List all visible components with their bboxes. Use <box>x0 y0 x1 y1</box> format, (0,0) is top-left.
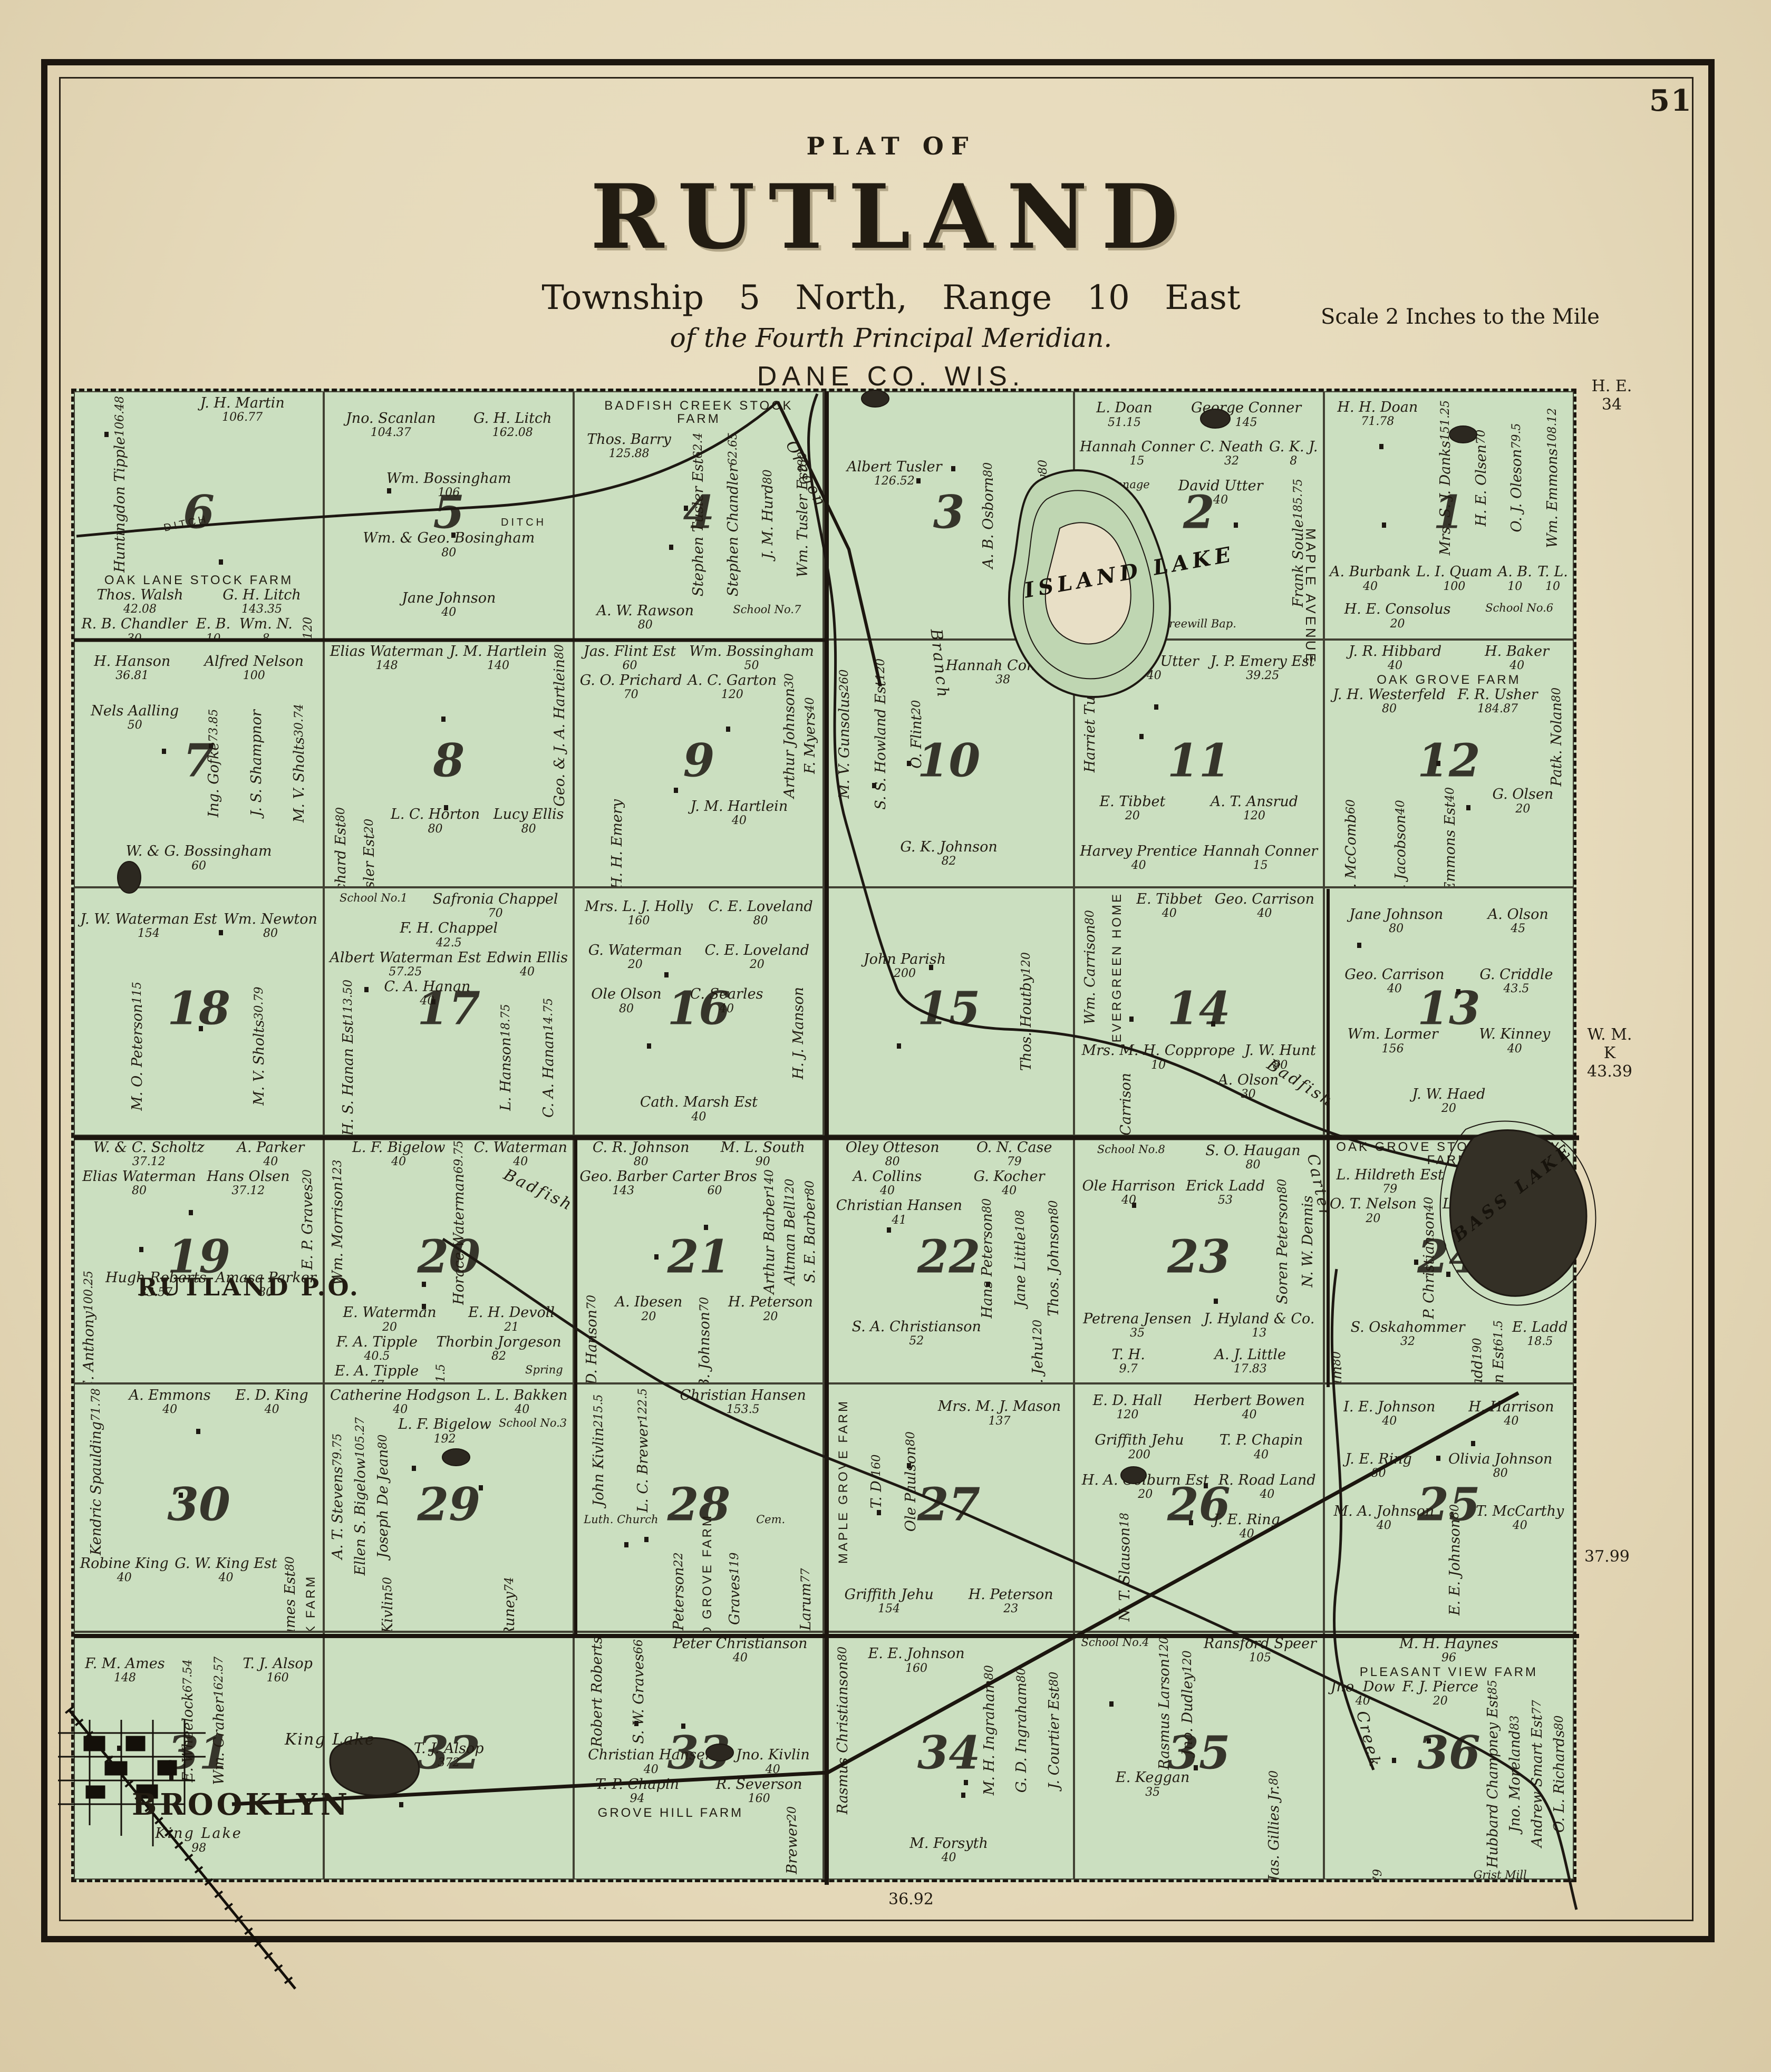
parcel-name: M. V. Sholts <box>291 737 307 822</box>
parcel-name: H. S. Hanan Est <box>340 1020 356 1134</box>
parcel-name: Spring <box>525 1364 563 1376</box>
house-marker <box>1211 1021 1215 1027</box>
parcel-name: M. Forsyth <box>909 1836 988 1851</box>
parcel-acreage: 40 <box>1220 1448 1303 1461</box>
parcel-name: Olivia Johnson <box>1448 1452 1552 1467</box>
owner-label: L. F. Bigelow40 <box>352 1140 446 1305</box>
parcel-name: J. E. Ring <box>1214 1513 1280 1527</box>
parcel-name: Wm. Morrison <box>330 1182 346 1285</box>
owner-label: Griffith Jehu200 <box>1095 1433 1184 1461</box>
section-labels: School No.1Safronia Chappel70F. H. Chapp… <box>325 888 573 1135</box>
parcel-acreage: 80 <box>493 822 564 836</box>
owner-label: Geo. Barber143 <box>579 1169 667 1294</box>
section-labels: H. H. Doan71.78Mrs. S. J. Danks151.25H. … <box>1325 392 1573 638</box>
parcel-name: J. H. Martin <box>200 396 285 411</box>
parcel-name: T. McCarthy <box>1476 1504 1564 1519</box>
title-name: RUTLAND <box>337 164 1445 269</box>
parcel-acreage: 23 <box>496 1382 509 1382</box>
parcel-name: C. Waterman <box>474 1140 567 1155</box>
section-8: 8Elias Waterman148J. M. Hartlein140Geo. … <box>324 640 574 888</box>
owner-label: Mrs. S. J. Danks151.25 <box>1438 400 1453 556</box>
owner-label: E. E. Johnson80 <box>1448 1504 1463 1615</box>
parcel-name: G. H. Litch <box>473 411 551 426</box>
parcel-name: O. L. Richards <box>1551 1730 1567 1832</box>
parcel-name: Thorbin Jorgeson <box>436 1335 561 1350</box>
section-labels: H. Hanson36.81Alfred Nelson100Nels Aalli… <box>75 641 323 887</box>
parcel-name: S. W. Graves <box>631 1654 647 1744</box>
parcel-acreage: 20 <box>1330 1212 1417 1225</box>
parcel-name: Geo. Carrison <box>1215 892 1314 907</box>
parcel-name: Catherine Hodgson <box>330 1388 470 1403</box>
parcel-name: Mrs. S. J. Danks <box>1437 441 1454 556</box>
section-labels: J. W. Waterman Est154Wm. Newton80M. O. P… <box>75 888 323 1135</box>
parcel-name: J. B. Johnson <box>696 1312 713 1382</box>
section-27: 27MAPLE GROVE FARMT. D.160Ole Paulson80M… <box>824 1383 1073 1632</box>
parcel-name: H. Peterson <box>728 1295 813 1310</box>
parcel-acreage: 80 <box>804 1180 817 1195</box>
owner-label: G. H. Litch162.08 <box>473 411 551 439</box>
parcel-name: Rasmus Christianson <box>835 1661 851 1814</box>
owner-label: M. L. South90 <box>721 1140 805 1168</box>
owner-label: S. W. Graves119 <box>728 1514 742 1631</box>
parcel-name: Petrena Jensen <box>1083 1312 1192 1327</box>
parcel-name: Hans Peterson <box>979 1213 995 1319</box>
section-labels: Wm. Carrison80EVERGREEN HOMEE. Tibbet40G… <box>1075 888 1323 1135</box>
parcel-acreage: 111.5 <box>434 1364 448 1382</box>
owner-label: L. Hildreth Est79 <box>1336 1168 1443 1196</box>
parcel-acreage: 32 <box>1200 454 1264 468</box>
owner-label: E. E. Johnson160 <box>868 1647 965 1814</box>
parcel-acreage: 20 <box>1412 1102 1485 1115</box>
parcel-acreage: 36.81 <box>94 669 170 682</box>
parcel-acreage: 80 <box>761 470 775 485</box>
parcel-acreage: 30 <box>1218 1088 1279 1101</box>
parcel-name: PLEASANT VIEW FARM <box>1360 1666 1538 1679</box>
parcel-name: L. F. Bigelow <box>398 1417 491 1432</box>
section-15: 15John Parish200Thos. Houtby120 <box>824 887 1073 1136</box>
owner-label: Arthur Barber140 <box>762 1169 777 1294</box>
owner-label: David Utter40 <box>1178 479 1263 607</box>
parcel-acreage: 120 <box>1020 952 1033 974</box>
parcel-name: Jane Little <box>1012 1232 1029 1307</box>
parcel-acreage: 30.79 <box>253 986 266 1020</box>
parcel-acreage: 60 <box>672 1184 757 1197</box>
place-label: Grist Mill <box>1474 1869 1527 1879</box>
parcel-acreage: 40 <box>1330 580 1411 593</box>
owner-label: James Carrison <box>1119 1073 1134 1135</box>
parcel-name: M. A. Johnson <box>1333 1504 1434 1519</box>
parcel-name: John Kivlin <box>591 1428 607 1506</box>
parcel-name: Peter Christianson <box>673 1637 807 1651</box>
parcel-acreage: 115 <box>131 982 144 1004</box>
owner-label: J. P. Emery Est39.25 <box>1211 654 1315 772</box>
school-label: School No.1 <box>340 892 408 920</box>
parcel-name: Hannah Conner <box>1203 844 1318 859</box>
parcel-acreage: 30 <box>81 632 187 638</box>
parcel-acreage: 37.12 <box>207 1184 289 1197</box>
parcel-name: Horace Waterman <box>451 1173 467 1304</box>
brooklyn-label: BROOKLYN <box>132 1787 351 1822</box>
parcel-name: L. Emmons Est <box>1442 802 1458 886</box>
school-label: School No.8 <box>1097 1144 1165 1171</box>
parcel-name: S. Larum <box>798 1583 814 1630</box>
parcel-acreage: 83 <box>1508 1716 1522 1730</box>
parcel-acreage: 80 <box>596 618 694 632</box>
owner-label: R. Severson160 <box>716 1777 802 1805</box>
owner-label: D. McComb60 <box>1344 787 1359 886</box>
house-marker <box>162 749 166 754</box>
parcel-name: Geo. Barber <box>579 1169 667 1184</box>
parcel-acreage: 123 <box>331 1159 344 1182</box>
parcel-acreage: 79 <box>1336 1183 1443 1196</box>
parcel-name: H. H. Doan <box>1337 400 1418 415</box>
owner-label: F. Myers40 <box>803 673 818 798</box>
owner-label: M. H. Haynes96 <box>1399 1637 1498 1664</box>
parcel-acreage: 42.5 <box>400 936 498 950</box>
parcel-name: J. Hyland & Co. <box>1204 1312 1314 1327</box>
section-26: 26E. D. Hall120Herbert Bowen40Griffith J… <box>1074 1383 1324 1632</box>
parcel-acreage: 80 <box>1349 922 1443 935</box>
parcel-name: Elias Waterman <box>82 1169 196 1184</box>
parcel-name: M. H. Haynes <box>1399 1637 1498 1651</box>
parcel-acreage: 143.35 <box>222 603 301 616</box>
owner-label: Lucy Ellis80 <box>493 807 564 886</box>
owner-label: H. H. Doan71.78 <box>1337 400 1418 556</box>
owner-label: J. M. Hartlein40 <box>690 799 788 886</box>
parcel-acreage: 106.77 <box>200 411 285 424</box>
house-marker <box>872 783 876 788</box>
parcel-name: S. E. Barber <box>802 1195 818 1283</box>
owner-label: G. D. Ingraham80 <box>1014 1647 1029 1814</box>
parcel-name: Ing. Gofke <box>206 742 222 818</box>
parcel-acreage: 70 <box>585 1295 598 1310</box>
section-11: 11Harriet Tusler60Elizth. Utter40J. P. E… <box>1074 640 1324 888</box>
parcel-name: A. C. Garton <box>688 673 777 688</box>
farm-label: BADFISH CREEK STOCK FARM <box>582 399 816 425</box>
parcel-acreage: 50 <box>689 659 814 672</box>
owner-label: Thos. Houtby120 <box>1019 952 1034 1071</box>
section-29: 29Catherine Hodgson40L. L. Bakken40A. T.… <box>324 1383 574 1632</box>
section-labels: M. H. Haynes96PLEASANT VIEW FARMJno. Dow… <box>1325 1633 1573 1879</box>
owner-label: Jas. Flint Est60 <box>584 644 676 672</box>
house-marker <box>647 1043 651 1049</box>
parcel-acreage: 70 <box>1475 429 1488 444</box>
place-label: Spring <box>525 1364 563 1382</box>
parcel-name: Hannah Conner <box>1080 440 1194 454</box>
parcel-acreage: 62.4 <box>692 432 705 458</box>
house-marker <box>726 727 730 732</box>
parcel-acreage: 126.52 <box>847 475 942 488</box>
owner-label: F. M. Ames148 <box>85 1657 164 1785</box>
church-label: Cem. <box>756 1514 785 1631</box>
parcel-name: J. M. Hurd <box>760 485 776 559</box>
parcel-name: Altman Bell <box>782 1200 798 1285</box>
section-22: 22Oley Otteson80O. N. Case79A. Collins40… <box>824 1136 1073 1384</box>
church-label: Luth. Church <box>584 1514 658 1631</box>
owner-label: F. J. Pierce20 <box>1402 1680 1478 1868</box>
section-labels: J. R. Hibbard40H. Baker40OAK GROVE FARMJ… <box>1325 641 1573 887</box>
parcel-acreage: 57 <box>335 1379 419 1382</box>
owner-label: C. Waterman40 <box>474 1140 567 1305</box>
parcel-name: R. Road Land <box>1218 1473 1316 1488</box>
section-5: 5Jno. Scanlan104.37G. H. Litch162.08Wm. … <box>324 391 574 640</box>
parcel-acreage: 40 <box>1485 659 1549 672</box>
owner-label: Ole Harrison40 <box>1082 1179 1175 1304</box>
owner-label: Ole Olson80 <box>591 987 662 1079</box>
section-labels: BADFISH CREEK STOCK FARMThos. Barry125.8… <box>575 392 822 638</box>
parcel-acreage: 153.5 <box>680 1403 806 1416</box>
parcel-name: E. Tibbet <box>1136 892 1202 907</box>
parcel-name: A. Burbank <box>1330 565 1411 579</box>
owner-label: L.E & L. Hildreth28 <box>1443 1197 1568 1319</box>
owner-label: Christian Hansen40 <box>588 1748 714 1776</box>
owner-label: Griffith Jehu154 <box>844 1587 933 1615</box>
parcel-name: Thos. Barry <box>587 432 671 447</box>
parcel-name: L. Hanson <box>498 1038 514 1111</box>
owner-label: C. A. Hanan40 <box>384 980 470 1134</box>
parcel-name: Wm. & Geo. Bosingham <box>363 531 535 546</box>
parcel-acreage: 70 <box>433 907 558 920</box>
house-marker <box>196 1429 200 1434</box>
owner-label: Wm. Lormer156 <box>1348 1027 1438 1055</box>
owner-label: J. W. Haed20 <box>1412 1087 1485 1115</box>
owner-label: H. S. Hanan Est113.50 <box>341 980 356 1134</box>
owner-label: Kendric Spaulding71.78 <box>89 1388 104 1555</box>
parcel-name: Alfred Nelson <box>204 654 304 669</box>
house-marker <box>1189 1520 1193 1525</box>
owner-label: Jno. Dow40 <box>1331 1680 1395 1868</box>
farm-label: OAK GROVE FARM <box>1377 673 1521 686</box>
parcel-name: James Carrison <box>1118 1073 1134 1135</box>
parcel-acreage: 17.83 <box>1215 1362 1286 1376</box>
parcel-name: G. D. Ingraham <box>1013 1683 1030 1793</box>
parcel-acreage: 40 <box>1331 1695 1395 1708</box>
parcel-acreage: 80 <box>983 1666 996 1680</box>
owner-label: S. E. Barber80 <box>803 1169 818 1294</box>
owner-label: G. K. J.8 <box>1269 440 1318 468</box>
owner-label: John Kivlin215.5 <box>592 1388 606 1513</box>
owner-label: G. Olsen20 <box>1493 787 1554 886</box>
parcel-name: Griffith Jehu <box>1095 1433 1184 1448</box>
owner-label: E. Tibbet20 <box>1099 795 1165 822</box>
owner-label: L. Jacobson40 <box>1393 787 1408 886</box>
owner-label: A. Waterman17 <box>464 1364 479 1382</box>
parcel-name: C. E. Anthony <box>81 1311 97 1382</box>
parcel-name: G. Olsen <box>1493 787 1554 802</box>
section-labels: Mrs. L. J. Holly160C. E. Loveland80G. Wa… <box>575 888 822 1135</box>
owner-label: Jno. Moreland83 <box>1508 1680 1523 1868</box>
parcel-name: M. V. Sholts <box>251 1020 267 1105</box>
section-labels: C. R. Johnson80M. L. South90Geo. Barber1… <box>575 1137 822 1383</box>
house-marker <box>1446 1272 1450 1277</box>
parcel-name: L. Hildreth Est <box>1336 1168 1443 1183</box>
parcel-acreage: 154 <box>844 1602 933 1615</box>
owner-label: G. Waterman20 <box>588 943 682 971</box>
parcel-acreage: 40 <box>1344 982 1444 995</box>
section-labels: John Kivlin215.5L. C. Brewer122.5Christi… <box>575 1384 822 1631</box>
parcel-name: Andrew Smart Est <box>1529 1715 1545 1848</box>
section-labels: Elias Waterman148J. M. Hartlein140Geo. &… <box>325 641 573 887</box>
parcel-name: Ole Paulson <box>903 1446 919 1532</box>
section-34: 34Rasmus Christianson80E. E. Johnson160M… <box>824 1632 1073 1880</box>
parcel-name: Ole Harrison <box>1082 1179 1175 1194</box>
parcel-name: L. Jacobson <box>1392 815 1409 886</box>
parcel-acreage: 260 <box>838 670 851 692</box>
owner-label: Ludwick Ladd190 <box>1470 1320 1485 1382</box>
farm-label: OAK GROVE STOCK & DAIRY FARM <box>1332 1140 1566 1167</box>
parcel-acreage: 9.7 <box>1112 1362 1145 1376</box>
parcel-name: Parsonage <box>1091 479 1150 490</box>
parcel-acreage: 18 <box>1118 1513 1131 1527</box>
parcel-name: Arthur Johnson <box>781 688 798 798</box>
parcel-name: O. Flint <box>908 714 925 768</box>
parcel-name: L. L. Bakken <box>477 1388 567 1403</box>
parcel-name: Albert Tusler <box>847 460 942 475</box>
parcel-name: E. E. Johnson <box>868 1647 965 1661</box>
owner-label: E. D. Hall120 <box>1093 1393 1163 1421</box>
parcel-name: H. Baker <box>1485 644 1549 659</box>
parcel-acreage: 80 <box>904 1431 917 1446</box>
parcel-name: C. A. Hanan <box>384 980 470 994</box>
parcel-name: J. M. Hartlein <box>690 799 788 814</box>
parcel-acreage: 8 <box>1269 454 1318 468</box>
house-marker <box>209 743 213 749</box>
owner-label: F. A. Tipple40.5 <box>336 1335 418 1363</box>
owner-label: H. Baker40 <box>1485 644 1549 672</box>
parcel-name: S. O. Haugan <box>1205 1144 1300 1158</box>
farm-label: PLEASANT VIEW FARM <box>1360 1666 1538 1679</box>
house-marker <box>1414 1260 1418 1265</box>
maple-avenue-label: MAPLE AVENUE <box>1302 528 1319 665</box>
parcel-acreage: 61.5 <box>1492 1320 1505 1346</box>
parcel-acreage: 184.87 <box>1458 702 1538 715</box>
parcel-name: Hannah Conner <box>946 659 1060 673</box>
parcel-name: T. D. <box>868 1477 885 1508</box>
owner-label: M. H. Ingraham80 <box>982 1647 997 1814</box>
parcel-name: School No.7 <box>733 604 801 615</box>
owner-label: P. Christianson40 <box>1422 1197 1437 1319</box>
parcel-acreage: 80 <box>1448 1467 1552 1480</box>
owner-label: E. H. Devoll21 <box>468 1305 555 1333</box>
parcel-name: L. C. Brewer <box>784 1821 800 1879</box>
parcel-acreage: 14.75 <box>542 998 555 1031</box>
parcel-acreage: 160 <box>585 914 693 927</box>
owner-label: H. H. Emery <box>610 799 625 886</box>
owner-label: E. B.10 <box>196 617 230 638</box>
title-block: PLAT OF RUTLAND Township 5 North, Range … <box>337 132 1445 392</box>
parcel-acreage: 67.54 <box>181 1659 195 1692</box>
parcel-acreage: 8 <box>239 632 293 638</box>
owner-label: Ransford Speer105 <box>1204 1637 1317 1770</box>
parcel-acreage: 80 <box>1276 1179 1289 1194</box>
owner-label: J. Courtier Est80 <box>1047 1647 1062 1814</box>
parcel-name: Mrs. L. J. Holly <box>585 899 693 914</box>
house-marker <box>1382 522 1386 528</box>
owner-label: Robert Roberts <box>590 1637 605 1747</box>
owner-label: Erick Ladd53 <box>1186 1179 1265 1304</box>
owner-label: Petrena Jensen35 <box>1083 1312 1192 1340</box>
parcel-acreage: 40 <box>640 1110 758 1124</box>
parcel-acreage: 145 <box>1191 416 1301 429</box>
parcel-name: N. T. Slauson <box>1117 1527 1133 1621</box>
owner-label: Mrs. L. J. Holly160 <box>585 899 693 927</box>
parcel-acreage: 13 <box>1204 1327 1314 1340</box>
owner-label: John Parish200 <box>864 952 946 1071</box>
owner-label: M. V. Gunsolus260 <box>837 659 852 810</box>
margin-note-wmk: W. M. K 43.39 <box>1581 1025 1639 1081</box>
parcel-acreage: 140 <box>450 659 547 672</box>
parcel-name: Thos. Walsh <box>96 588 183 603</box>
section-18: 18J. W. Waterman Est154Wm. Newton80M. O.… <box>74 887 324 1136</box>
parcel-acreage: 20 <box>1099 809 1165 822</box>
parcel-name: A. J. Little <box>1215 1348 1286 1362</box>
section-33: 33Robert RobertsS. W. Graves66Peter Chri… <box>574 1632 824 1880</box>
owner-label: M. Forsyth40 <box>909 1836 988 1864</box>
parcel-name: Geo. Carrison <box>1344 967 1444 982</box>
parcel-name: A. W. Rawson <box>596 604 694 618</box>
section-12: 12J. R. Hibbard40H. Baker40OAK GROVE FAR… <box>1324 640 1574 888</box>
parcel-name: H. R. James Est <box>282 1571 298 1631</box>
owner-label: J. E. Ring80 <box>1345 1452 1411 1480</box>
margin-note-3799: 37.99 <box>1584 1547 1630 1566</box>
parcel-name: Mrs. M. H. Copprope <box>1082 1043 1235 1058</box>
parcel-name: Soren Peterson <box>1274 1194 1291 1304</box>
house-marker <box>422 1282 426 1287</box>
house-marker <box>624 1542 628 1547</box>
farm-label: OAK LANE STOCK FARM <box>104 574 293 587</box>
parcel-acreage: 40 <box>477 1403 567 1416</box>
owner-label: C. E. Waterman111.5 <box>434 1364 449 1382</box>
house-marker <box>1392 1758 1396 1763</box>
house-marker <box>1379 444 1383 449</box>
parcel-name: OAK GROVE STOCK & DAIRY FARM <box>1332 1140 1566 1167</box>
parcel-name: E. E. Johnson <box>1447 1519 1463 1615</box>
owner-label: A. B. Osborn80 <box>981 460 996 570</box>
owner-label: H. R. James Est80 <box>283 1556 298 1631</box>
section-9: 9Jas. Flint Est60Wm. Bossingham50G. O. P… <box>574 640 824 888</box>
parcel-acreage: 60 <box>1083 654 1097 669</box>
parcel-name: Wm. Bossingham <box>386 471 511 486</box>
owner-label: Jno. Dudley120 <box>1180 1637 1195 1770</box>
owner-label: F. H. Chappel42.5 <box>400 921 498 949</box>
parcel-acreage: 20 <box>1344 617 1451 631</box>
parcel-acreage: 120 <box>783 1178 797 1200</box>
parcel-name: G. K. Johnson <box>900 840 997 855</box>
owner-label: J. M. Hurd80 <box>761 432 776 596</box>
parcel-acreage: 20 <box>728 1310 813 1323</box>
parcel-acreage: 80 <box>1333 702 1446 715</box>
parcel-acreage: 40 <box>690 1002 763 1015</box>
owner-label: J. B. Runey74 <box>502 1577 517 1631</box>
owner-label: O. N. Case79 <box>976 1140 1052 1168</box>
parcel-acreage: 40 <box>673 1651 807 1664</box>
parcel-name: W. & G. Bossingham <box>126 844 272 859</box>
house-marker <box>674 788 678 793</box>
owner-label: Wm. Bossingham106 <box>386 471 511 499</box>
section-labels: W. & C. Scholtz37.12A. Parker40Elias Wat… <box>75 1137 323 1383</box>
parcel-acreage: 21 <box>468 1321 555 1334</box>
parcel-name: Stephen Tusler Est <box>690 458 707 596</box>
parcel-acreage: 80 <box>224 927 317 940</box>
house-marker <box>1204 1483 1208 1488</box>
owner-label: Peter Christianson40 <box>673 1637 807 1747</box>
parcel-name: W. Kinney <box>1479 1027 1550 1042</box>
parcel-acreage: 120 <box>1181 1650 1194 1672</box>
parcel-acreage: 40 <box>1476 1519 1564 1532</box>
section-23: 23School No.8S. O. Haugan80Ole Harrison4… <box>1074 1136 1324 1384</box>
owner-label: Wm. Craher162.57 <box>212 1657 227 1785</box>
parcel-name: Herbert Bowen <box>1194 1393 1305 1408</box>
